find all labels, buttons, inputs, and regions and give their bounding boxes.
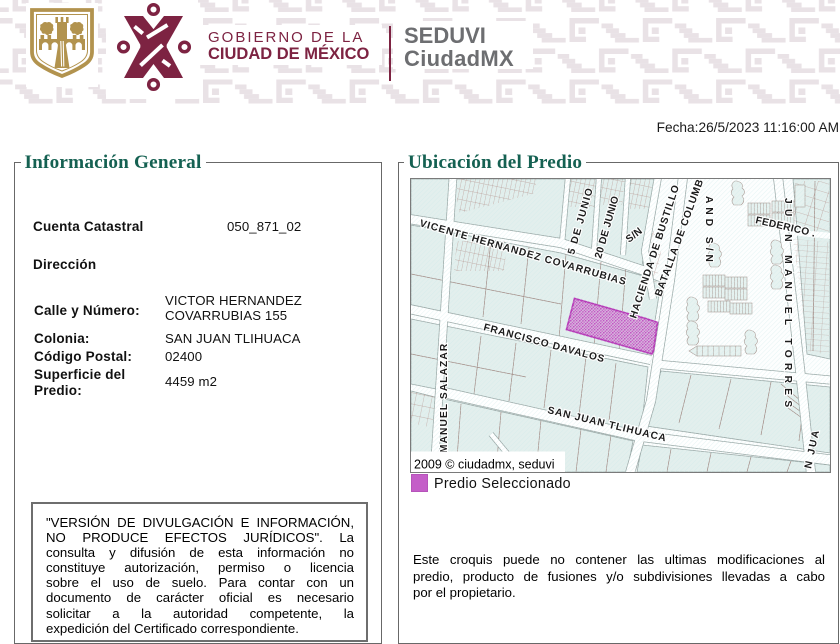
- svg-text:2009 © ciudadmx, seduvi: 2009 © ciudadmx, seduvi: [414, 458, 555, 472]
- svg-text:AND S/N: AND S/N: [703, 196, 714, 266]
- svg-text:MANUEL SALAZAR: MANUEL SALAZAR: [439, 343, 450, 453]
